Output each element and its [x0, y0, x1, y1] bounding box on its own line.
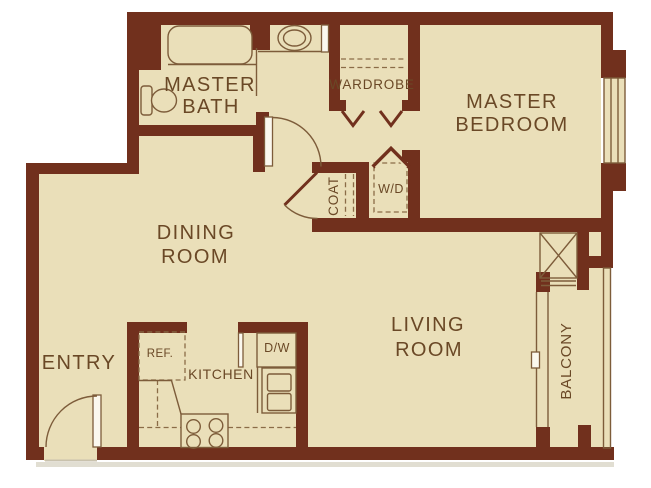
wd-label: W/D: [378, 182, 404, 196]
bedroom-window-icon: [604, 78, 625, 163]
living-room-label-2: ROOM: [395, 339, 463, 361]
wardrobe-jamb-left: [329, 100, 346, 111]
master-bedroom-label-2: BEDROOM: [455, 114, 568, 136]
coat-label: COAT: [326, 176, 341, 216]
window-stub-bottom: [612, 163, 626, 191]
wall-right-mid: [601, 163, 613, 268]
kitchen-label: KITCHEN: [188, 366, 254, 382]
entry-label: ENTRY: [42, 352, 116, 374]
balcony-label: BALCONY: [558, 322, 575, 399]
entry-threshold: [44, 447, 97, 461]
wall-step: [26, 163, 139, 174]
wall-wd-right: [408, 150, 420, 232]
counter-end-panel: [239, 333, 244, 367]
wardrobe-label: WARDROBE: [329, 77, 414, 92]
balcony-floor: [601, 268, 611, 448]
wall-balcony-bottom-stub: [578, 425, 591, 447]
vanity-end-panel: [322, 25, 329, 52]
bathtub-icon: [168, 26, 252, 64]
refrigerator-label: REF.: [147, 348, 174, 360]
wall-hall-top: [312, 162, 360, 173]
sliding-door-handle: [532, 352, 540, 368]
wall-bath-left: [127, 12, 139, 174]
dining-room-label-2: ROOM: [161, 246, 229, 268]
wall-coat-right: [356, 162, 369, 228]
master-bath-label-1: MASTER: [164, 74, 256, 96]
wall-bottom-left: [26, 447, 44, 460]
living-room-label-1: LIVING: [391, 314, 465, 336]
window-stub-top: [612, 50, 626, 78]
toilet-tank-icon: [141, 86, 152, 115]
wall-utility-right: [577, 230, 589, 290]
wall-right-top: [601, 12, 613, 78]
floor-plan-page: MASTER BATH WARDROBE MASTER BEDROOM DINI…: [0, 0, 651, 488]
wardrobe-jamb-right: [402, 100, 420, 111]
dining-room-label-1: DINING: [157, 222, 235, 244]
floor-plan-drawing: MASTER BATH WARDROBE MASTER BEDROOM DINI…: [0, 0, 651, 488]
wall-slider-bottom-stub: [536, 427, 550, 447]
wall-bath-bottom: [139, 125, 269, 136]
wall-kitchen-left: [127, 322, 139, 447]
wall-tub-alcove: [139, 12, 161, 70]
wall-top: [127, 12, 613, 25]
wall-wardrobe-left: [329, 12, 340, 111]
entry-floor: [39, 174, 139, 448]
master-bath-label-2: BATH: [182, 96, 239, 118]
master-bedroom-label-1: MASTER: [466, 91, 558, 113]
wall-left: [26, 163, 39, 459]
entry-door-leaf: [93, 395, 101, 447]
wall-hall-door: [253, 135, 265, 172]
wall-bottom: [97, 447, 614, 460]
drop-shadow: [36, 462, 614, 467]
wall-vanity-stub: [250, 12, 270, 50]
wall-bedroom-left: [408, 12, 420, 111]
wall-kitchen-right: [296, 322, 308, 447]
suite-door-leaf: [265, 117, 273, 166]
dishwasher-label: D/W: [264, 341, 290, 355]
